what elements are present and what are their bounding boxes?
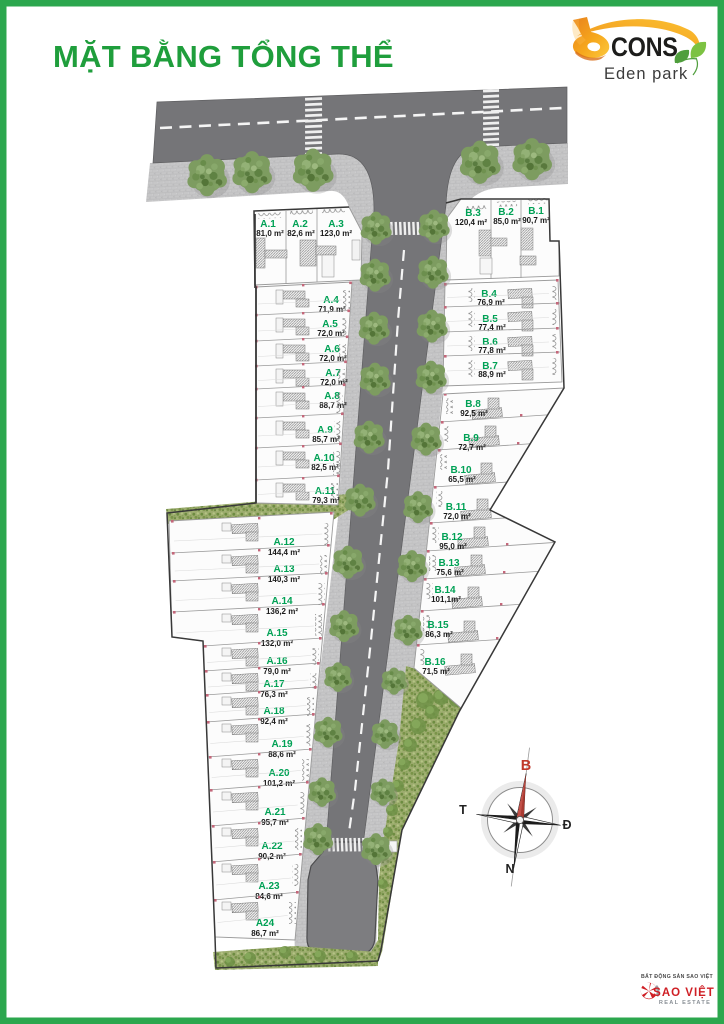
svg-text:A.17: A.17 — [263, 679, 285, 690]
svg-text:72,7 m²: 72,7 m² — [458, 443, 486, 452]
svg-text:86,3 m²: 86,3 m² — [425, 630, 453, 639]
svg-text:120,4 m²: 120,4 m² — [455, 218, 487, 227]
svg-text:A.19: A.19 — [271, 739, 293, 750]
svg-text:A.23: A.23 — [258, 881, 280, 892]
svg-text:CONS: CONS — [611, 33, 678, 63]
svg-text:92,4 m²: 92,4 m² — [260, 717, 288, 726]
svg-text:T: T — [459, 803, 467, 817]
svg-text:SAO VIỆT: SAO VIỆT — [653, 986, 715, 999]
svg-text:123,0 m²: 123,0 m² — [320, 229, 352, 238]
svg-text:71,5 m²: 71,5 m² — [422, 667, 450, 676]
svg-text:A.20: A.20 — [268, 768, 290, 779]
svg-text:72,0 m²: 72,0 m² — [443, 512, 471, 521]
svg-text:A.15: A.15 — [266, 628, 288, 639]
svg-text:A.12: A.12 — [273, 537, 295, 548]
svg-text:144,4 m²: 144,4 m² — [268, 548, 300, 557]
svg-text:140,3 m²: 140,3 m² — [268, 575, 300, 584]
svg-text:A.21: A.21 — [264, 807, 286, 818]
svg-text:101,1m²: 101,1m² — [431, 595, 461, 604]
svg-text:92,5 m²: 92,5 m² — [460, 409, 488, 418]
svg-text:A24: A24 — [256, 918, 275, 929]
svg-text:65,5 m²: 65,5 m² — [448, 475, 476, 484]
svg-text:A.14: A.14 — [271, 596, 293, 607]
svg-text:76,3 m²: 76,3 m² — [260, 690, 288, 699]
svg-text:136,2 m²: 136,2 m² — [266, 607, 298, 616]
svg-text:81,0 m²: 81,0 m² — [256, 229, 284, 238]
svg-text:N: N — [505, 862, 514, 876]
svg-text:95,7 m²: 95,7 m² — [261, 818, 289, 827]
svg-text:BẤT ĐỘNG SẢN SAO VIỆT: BẤT ĐỘNG SẢN SAO VIỆT — [641, 972, 714, 980]
svg-text:79,0 m²: 79,0 m² — [263, 667, 291, 676]
svg-text:B: B — [521, 758, 531, 774]
svg-text:Eden park: Eden park — [604, 65, 688, 83]
svg-text:82,6 m²: 82,6 m² — [287, 229, 315, 238]
svg-text:86,7 m²: 86,7 m² — [251, 929, 279, 938]
svg-text:75,6 m²: 75,6 m² — [436, 568, 464, 577]
svg-text:MẶT BẰNG TỔNG THỂ: MẶT BẰNG TỔNG THỂ — [53, 38, 394, 74]
svg-text:REAL ESTATE: REAL ESTATE — [659, 1000, 711, 1006]
svg-text:95,0 m²: 95,0 m² — [439, 542, 467, 551]
svg-text:90,7 m²: 90,7 m² — [522, 216, 550, 225]
svg-text:85,0 m²: 85,0 m² — [493, 217, 521, 226]
svg-text:Đ: Đ — [562, 818, 571, 832]
svg-text:71,9 m²: 71,9 m² — [318, 305, 346, 314]
svg-text:88,9 m²: 88,9 m² — [478, 370, 506, 379]
